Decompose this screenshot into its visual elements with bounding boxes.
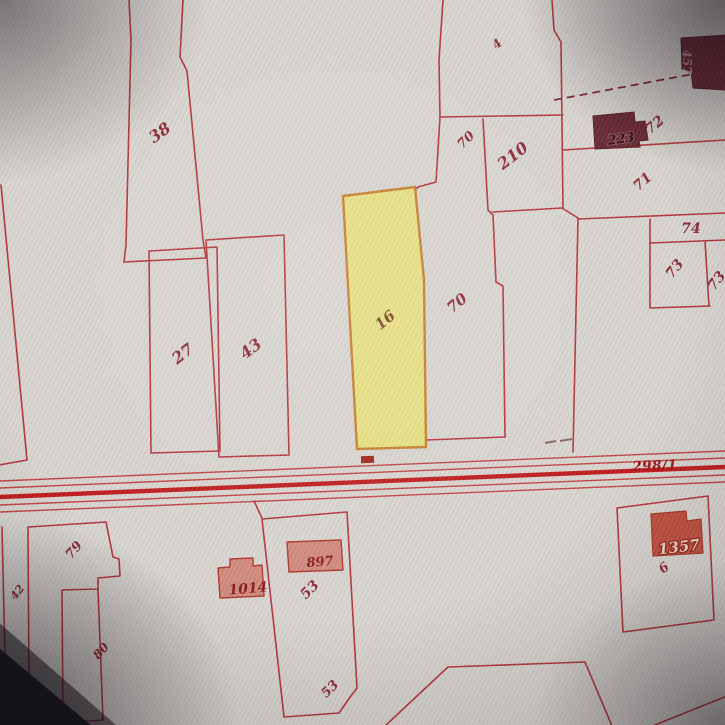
parcel-72-71-boundary (563, 140, 725, 150)
parcel-42-label: 42 (8, 582, 28, 602)
road-side-marker (361, 456, 374, 464)
parcel-210-label: 210 (493, 138, 532, 174)
parcel-70-bottom-boundary (426, 437, 505, 440)
parcel-4-bottom-boundary (440, 115, 563, 117)
parcel-79-label: 79 (63, 539, 86, 563)
parcel-53-upper-label: 53 (297, 577, 322, 602)
road-298-1-label: 298/1 (631, 457, 678, 475)
survey-dash-marks (545, 439, 572, 443)
parcel-73-left-label: 73 (663, 256, 688, 281)
parcel-53-lower-label: 53 (319, 678, 342, 701)
road-edge-line-1 (0, 451, 725, 481)
parcel-74-label: 74 (681, 221, 700, 237)
building-1357-label: 1357 (657, 535, 701, 558)
parcel-70-label: 70 (443, 289, 471, 317)
parcel-70-west-boundary (416, 117, 440, 189)
parcel-80-label: 80 (90, 640, 112, 662)
map-screen: 38 4 70 210 72 71 74 73 73 27 43 16 70 7… (0, 0, 725, 725)
parcel-south-pentagon-boundary (385, 662, 612, 725)
parcel-6-label: 6 (656, 560, 673, 577)
parcel-corner-boundary (650, 696, 725, 725)
parcel-71-label: 71 (630, 170, 655, 195)
road-edge-line-3 (0, 475, 725, 505)
parcel-211-east-boundary (573, 218, 578, 452)
parcel-27-label: 27 (167, 339, 197, 368)
building-897-label: 897 (306, 554, 334, 571)
map-canvas[interactable]: 38 4 70 210 72 71 74 73 73 27 43 16 70 7… (0, 0, 725, 725)
parcel-71-74-boundary (578, 213, 725, 219)
parcel-4-label: 4 (489, 36, 505, 52)
parcel-70-upper-label: 70 (455, 129, 478, 152)
parcel-4-right-boundary (552, 0, 563, 208)
parcel-42-boundary (2, 527, 6, 700)
parcel-38-label: 38 (145, 118, 174, 146)
parcel-4-left-boundary (439, 0, 443, 117)
parcel-left-sliver-boundary (0, 185, 27, 465)
parcel-53-connector (254, 501, 262, 518)
road-edge-line-4 (0, 482, 725, 512)
parcel-43-label: 43 (236, 334, 265, 363)
road-center-line (0, 467, 725, 497)
parcel-210-bottom-boundary (493, 208, 578, 218)
building-1014-label: 1014 (228, 579, 268, 598)
building-457-label: 457 (680, 49, 695, 75)
